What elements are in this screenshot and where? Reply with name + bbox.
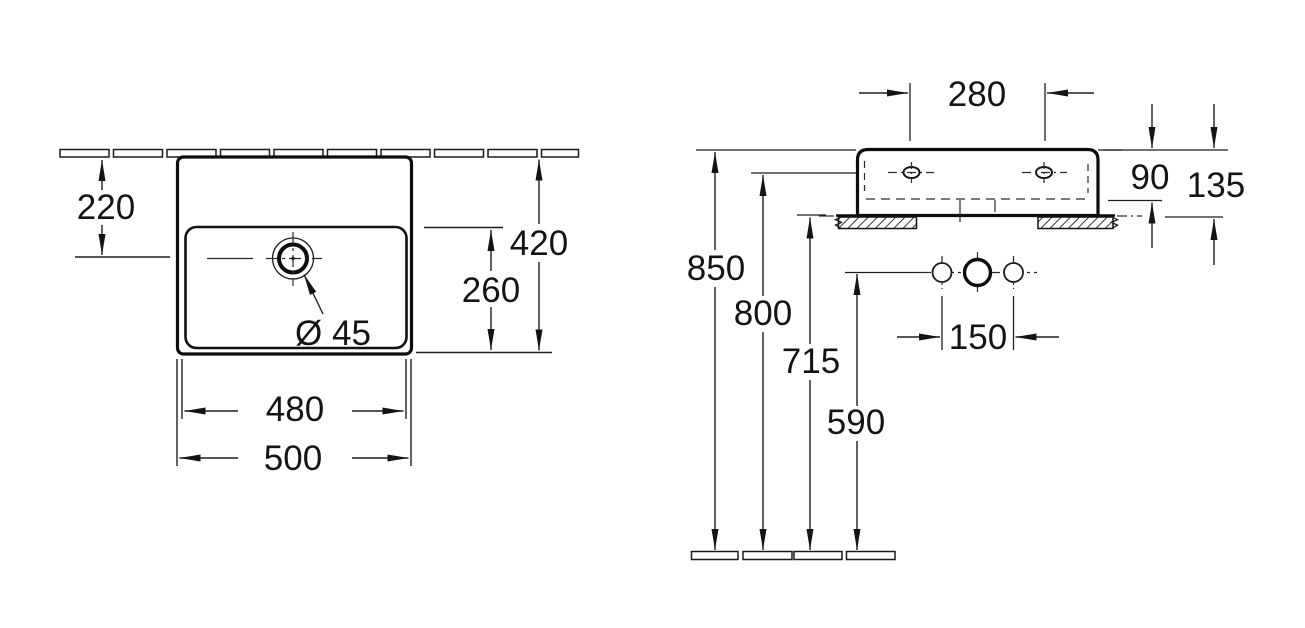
elevation-view: 280 90 135 850 800 <box>687 75 1245 560</box>
technical-drawing: 220 420 260 480 <box>0 0 1305 628</box>
dim-outlet-height: 590 <box>827 273 919 551</box>
dim-label-850: 850 <box>687 249 745 288</box>
outlet-holes <box>919 252 1037 293</box>
dim-label-150: 150 <box>949 318 1007 357</box>
outlet-hole-center <box>965 260 991 286</box>
floor-line <box>692 552 896 560</box>
dim-width-inner: 480 <box>182 359 406 429</box>
dim-label-420: 420 <box>510 224 568 263</box>
dim-label-90: 90 <box>1131 158 1170 197</box>
dim-bowl-depth: 260 <box>424 228 520 351</box>
drawing-canvas: 220 420 260 480 <box>0 0 1305 628</box>
dim-label-480: 480 <box>266 390 324 429</box>
dim-label-drain-diameter: Ø 45 <box>295 314 371 353</box>
dim-label-590: 590 <box>827 403 885 442</box>
dim-label-260: 260 <box>462 271 520 310</box>
plan-view: 220 420 260 480 <box>60 150 579 479</box>
basin-outline-elevation <box>858 150 1099 216</box>
dim-total-height: 135 <box>1165 104 1245 265</box>
mounting-bracket-right <box>1038 217 1118 229</box>
dim-label-500: 500 <box>264 439 322 478</box>
dim-label-135: 135 <box>1187 166 1245 205</box>
dim-label-280: 280 <box>948 75 1006 114</box>
dim-label-715: 715 <box>782 342 840 381</box>
dim-underside-height: 715 <box>782 215 840 550</box>
dim-label-220: 220 <box>77 188 135 227</box>
dim-depth-total: 420 <box>416 160 568 353</box>
dim-outlet-spacing: 150 <box>897 296 1059 357</box>
outlet-hole-left <box>933 263 952 282</box>
dim-wall-to-drain: 220 <box>75 160 170 257</box>
dim-label-800: 800 <box>734 294 792 333</box>
mounting-bracket-left <box>836 217 917 229</box>
dim-faucet-hole-spacing: 280 <box>859 75 1094 141</box>
dim-rim-height: 850 <box>687 152 745 550</box>
outlet-hole-right <box>1004 263 1023 282</box>
